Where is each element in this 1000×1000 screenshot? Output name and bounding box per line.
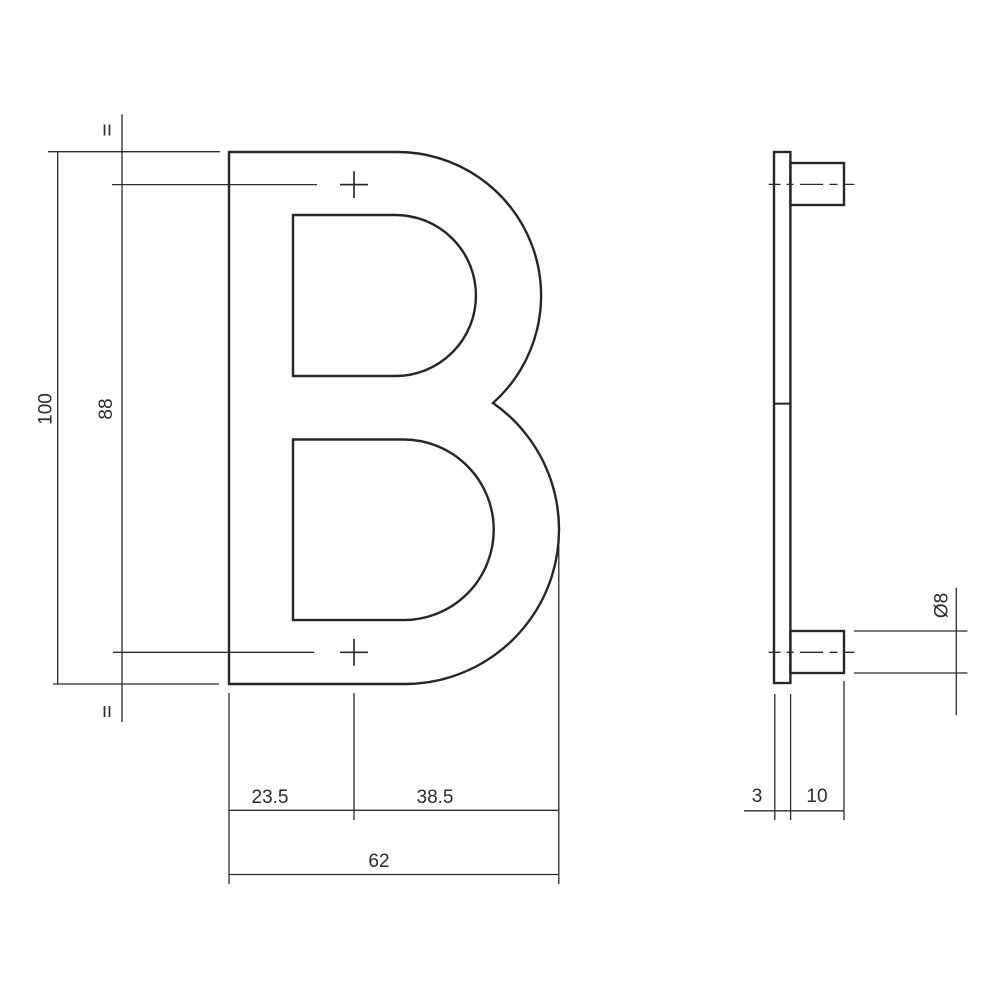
svg-text:38.5: 38.5 — [417, 787, 454, 808]
svg-text:23.5: 23.5 — [252, 787, 289, 808]
svg-text:10: 10 — [806, 786, 827, 807]
svg-text:62: 62 — [368, 851, 389, 872]
svg-text:Ø8: Ø8 — [932, 593, 953, 618]
svg-text:3: 3 — [752, 786, 763, 807]
svg-text:100: 100 — [36, 393, 57, 425]
svg-text:88: 88 — [96, 398, 117, 419]
